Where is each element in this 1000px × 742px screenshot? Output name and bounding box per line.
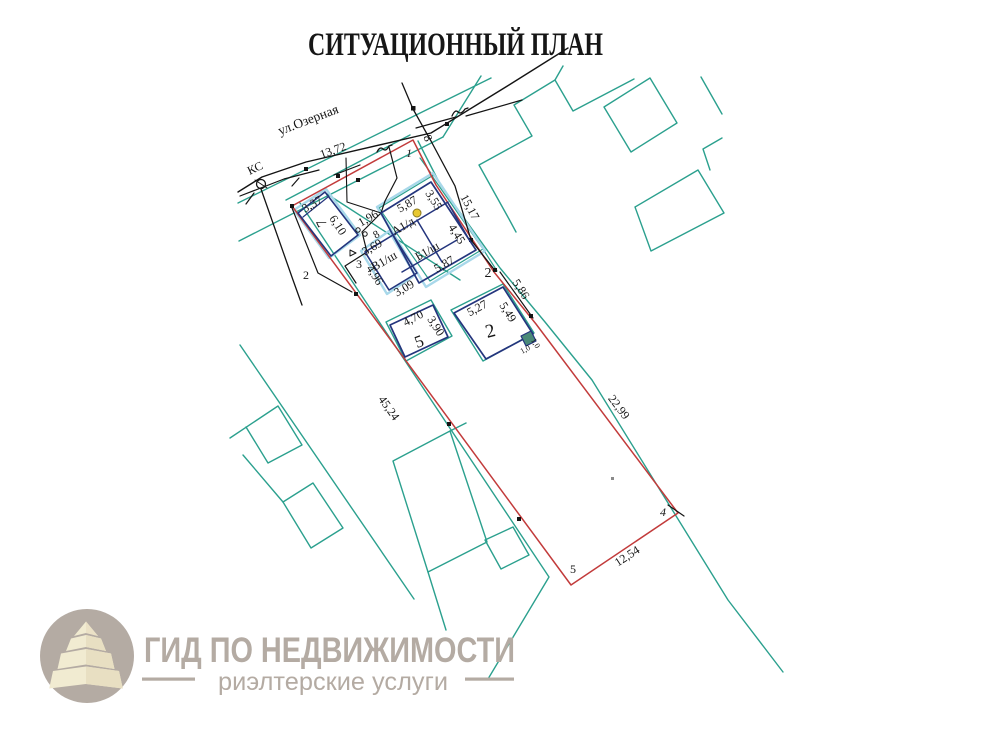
svg-text:СИТУАЦИОННЫЙ ПЛАН: СИТУАЦИОННЫЙ ПЛАН (308, 26, 603, 63)
svg-text:2: 2 (485, 266, 492, 281)
svg-text:2: 2 (303, 268, 309, 282)
svg-text:5: 5 (570, 562, 576, 576)
svg-text:ГИД ПО НЕДВИЖИМОСТИ: ГИД ПО НЕДВИЖИМОСТИ (144, 631, 515, 670)
svg-text:1: 1 (406, 146, 412, 160)
svg-text:3: 3 (356, 257, 362, 271)
svg-text:риэлтерские услуги: риэлтерские услуги (218, 668, 448, 696)
svg-text:4: 4 (660, 505, 666, 519)
